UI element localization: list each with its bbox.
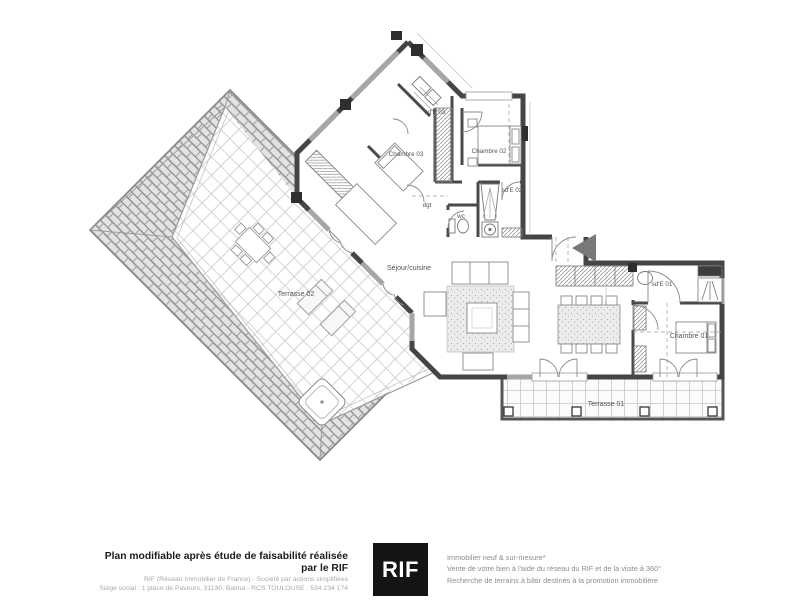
footer-service-line-3: Recherche de terrains à bâtir destinés à… [447, 575, 777, 586]
room-label-terrasse02: Terrasse 02 [278, 291, 315, 298]
room-label-sde01: sd'E 01 [652, 281, 673, 288]
footer-left-block: Plan modifiable après étude de faisabili… [88, 551, 348, 593]
room-label-sejour: Séjour/cuisine [387, 265, 431, 272]
footer-headline: Plan modifiable après étude de faisabili… [88, 551, 348, 575]
footer-company-line: RIF (Réseau Immobilier de France) - Soci… [88, 575, 348, 584]
footer-service-line-1: Immobilier neuf & sur-mesure* [447, 552, 777, 563]
room-label-wc: wc [456, 213, 465, 220]
room-label-dgt: dgt [423, 202, 432, 209]
room-label-terrasse01: Terrasse 01 [588, 401, 625, 408]
footer-service-line-2: Vente de votre bien à l'aide du réseau d… [447, 563, 777, 574]
floor-plan: sd'E 03 Chambre 03 Chambre 02 sd'E 02 dg… [0, 0, 800, 600]
room-label-sde02: sd'E 02 [502, 187, 523, 194]
floor-plan-page: sd'E 03 Chambre 03 Chambre 02 sd'E 02 dg… [0, 0, 800, 600]
room-label-chambre01: Chambre 01 [670, 333, 709, 340]
rif-logo: RIF [373, 543, 428, 596]
rif-logo-text: RIF [382, 557, 419, 583]
room-label-sde03: sd'E 03 [425, 109, 446, 116]
terrace-1 [502, 377, 723, 419]
room-label-chambre02: Chambre 02 [472, 148, 507, 155]
room-label-chambre03: Chambre 03 [389, 151, 424, 158]
footer-address-line: Siège social : 1 place de Paveurs, 31130… [88, 584, 348, 593]
footer-right-block: Immobilier neuf & sur-mesure* Vente de v… [447, 552, 777, 586]
